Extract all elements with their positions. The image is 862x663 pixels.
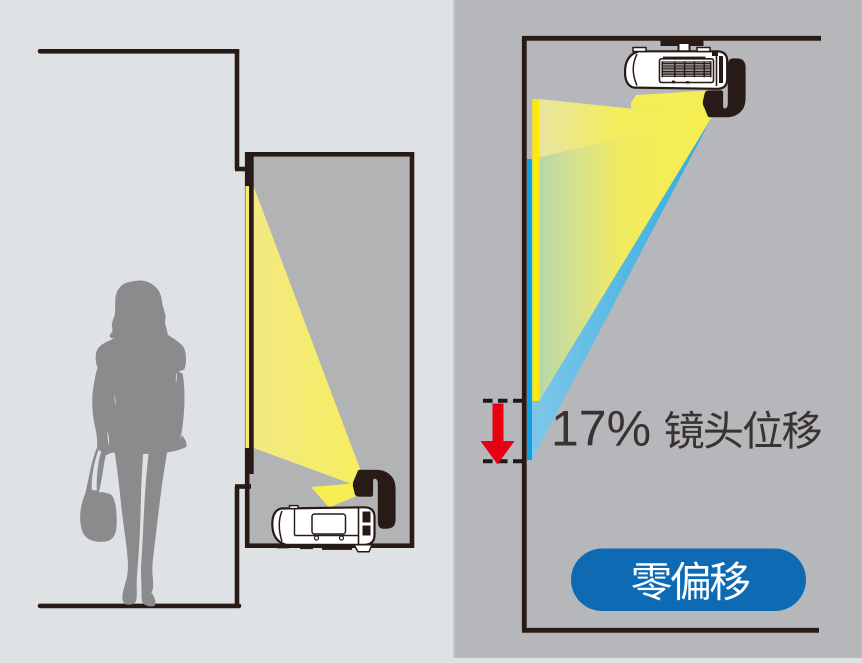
svg-text:17%: 17% <box>551 400 651 456</box>
